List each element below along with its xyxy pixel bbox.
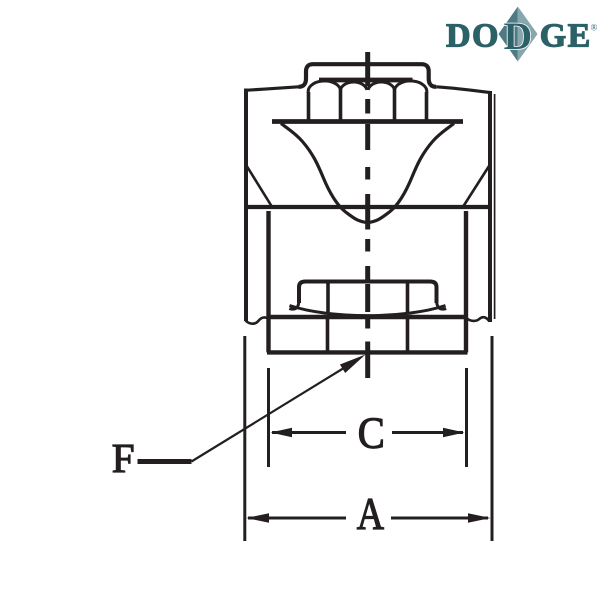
svg-text:C: C — [358, 409, 385, 458]
svg-text:F: F — [112, 435, 135, 481]
svg-text:DO: DO — [446, 17, 500, 54]
svg-text:GE: GE — [540, 17, 592, 54]
svg-text:A: A — [357, 489, 384, 539]
svg-text:®: ® — [591, 23, 598, 33]
svg-text:D: D — [504, 14, 533, 58]
